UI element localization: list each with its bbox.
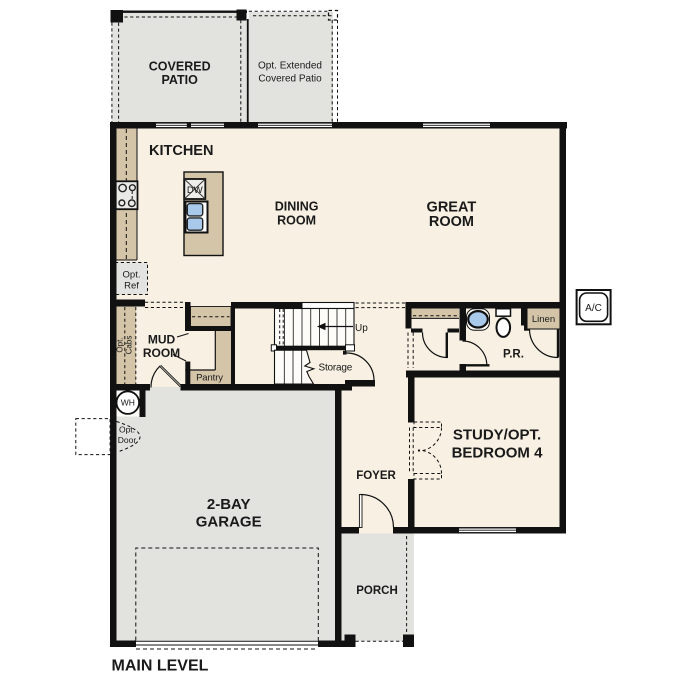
svg-text:A/C: A/C <box>585 303 602 314</box>
svg-text:DINING: DINING <box>275 199 319 213</box>
svg-text:WH: WH <box>121 398 135 408</box>
svg-text:FOYER: FOYER <box>356 470 396 482</box>
svg-text:Up: Up <box>355 323 368 334</box>
svg-text:Covered Patio: Covered Patio <box>258 74 322 85</box>
svg-text:KITCHEN: KITCHEN <box>149 143 213 159</box>
svg-text:Door: Door <box>118 435 137 445</box>
svg-text:MUD: MUD <box>148 333 176 347</box>
svg-text:Ref: Ref <box>124 281 139 292</box>
svg-text:ROOM: ROOM <box>429 214 474 230</box>
svg-text:BEDROOM 4: BEDROOM 4 <box>452 445 544 462</box>
svg-text:Opt. Extended: Opt. Extended <box>258 61 322 72</box>
svg-text:GARAGE: GARAGE <box>196 514 262 531</box>
svg-text:STUDY/OPT.: STUDY/OPT. <box>453 427 541 444</box>
svg-text:Linen: Linen <box>532 314 555 325</box>
svg-text:ROOM: ROOM <box>277 213 316 227</box>
svg-text:ROOM: ROOM <box>143 346 180 360</box>
svg-text:PATIO: PATIO <box>162 73 199 87</box>
svg-text:Storage: Storage <box>319 363 353 374</box>
svg-text:PORCH: PORCH <box>356 585 398 597</box>
svg-text:Opt.: Opt. <box>123 270 141 281</box>
svg-text:2-BAY: 2-BAY <box>207 496 251 513</box>
svg-text:COVERED: COVERED <box>149 60 211 74</box>
svg-text:Opt.: Opt. <box>116 337 125 352</box>
svg-text:Pantry: Pantry <box>196 373 223 384</box>
svg-text:Opt.: Opt. <box>119 425 135 435</box>
svg-text:MAIN LEVEL: MAIN LEVEL <box>112 658 209 675</box>
svg-text:P.R.: P.R. <box>503 349 524 361</box>
svg-text:Cabs: Cabs <box>125 336 134 355</box>
svg-text:DW: DW <box>187 185 203 196</box>
